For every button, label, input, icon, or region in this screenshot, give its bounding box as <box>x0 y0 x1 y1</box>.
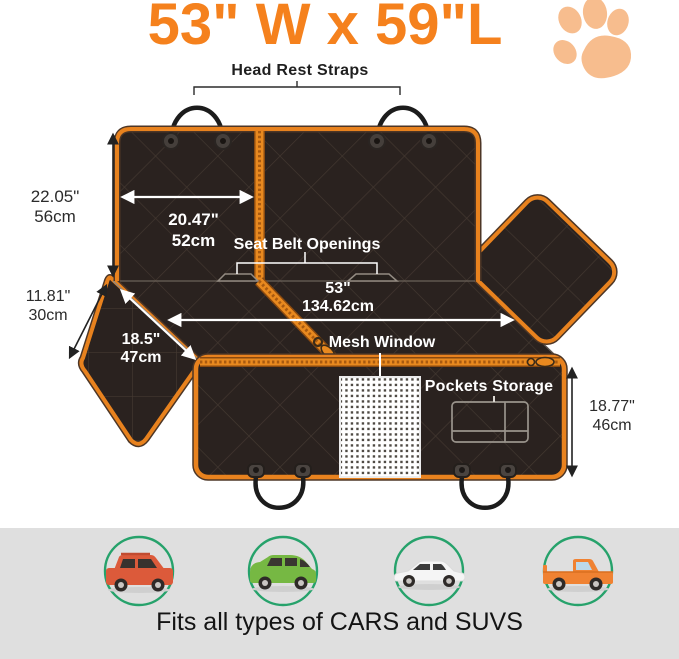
mesh-window <box>340 377 420 477</box>
fits-caption: Fits all types of CARS and SUVS <box>0 608 679 637</box>
zipper-pull <box>536 358 554 367</box>
head-rest-bracket <box>194 81 400 95</box>
car-sedan-white-icon <box>384 532 474 612</box>
car-pickup-orange-icon <box>533 532 623 612</box>
product-infographic: 53" W x 59"L Head Rest Straps 22.05" 56c… <box>0 0 679 659</box>
back-panel <box>117 129 478 281</box>
car-suv-red-icon <box>94 532 184 612</box>
bottom-straps <box>256 477 509 508</box>
zipper-pull-ring <box>528 359 535 366</box>
car-minivan-green-icon <box>238 532 328 612</box>
seat-cover-diagram <box>0 0 679 528</box>
vehicle-compatibility-band: Fits all types of CARS and SUVS <box>0 528 679 659</box>
page-title: 53" W x 59"L <box>0 0 650 58</box>
